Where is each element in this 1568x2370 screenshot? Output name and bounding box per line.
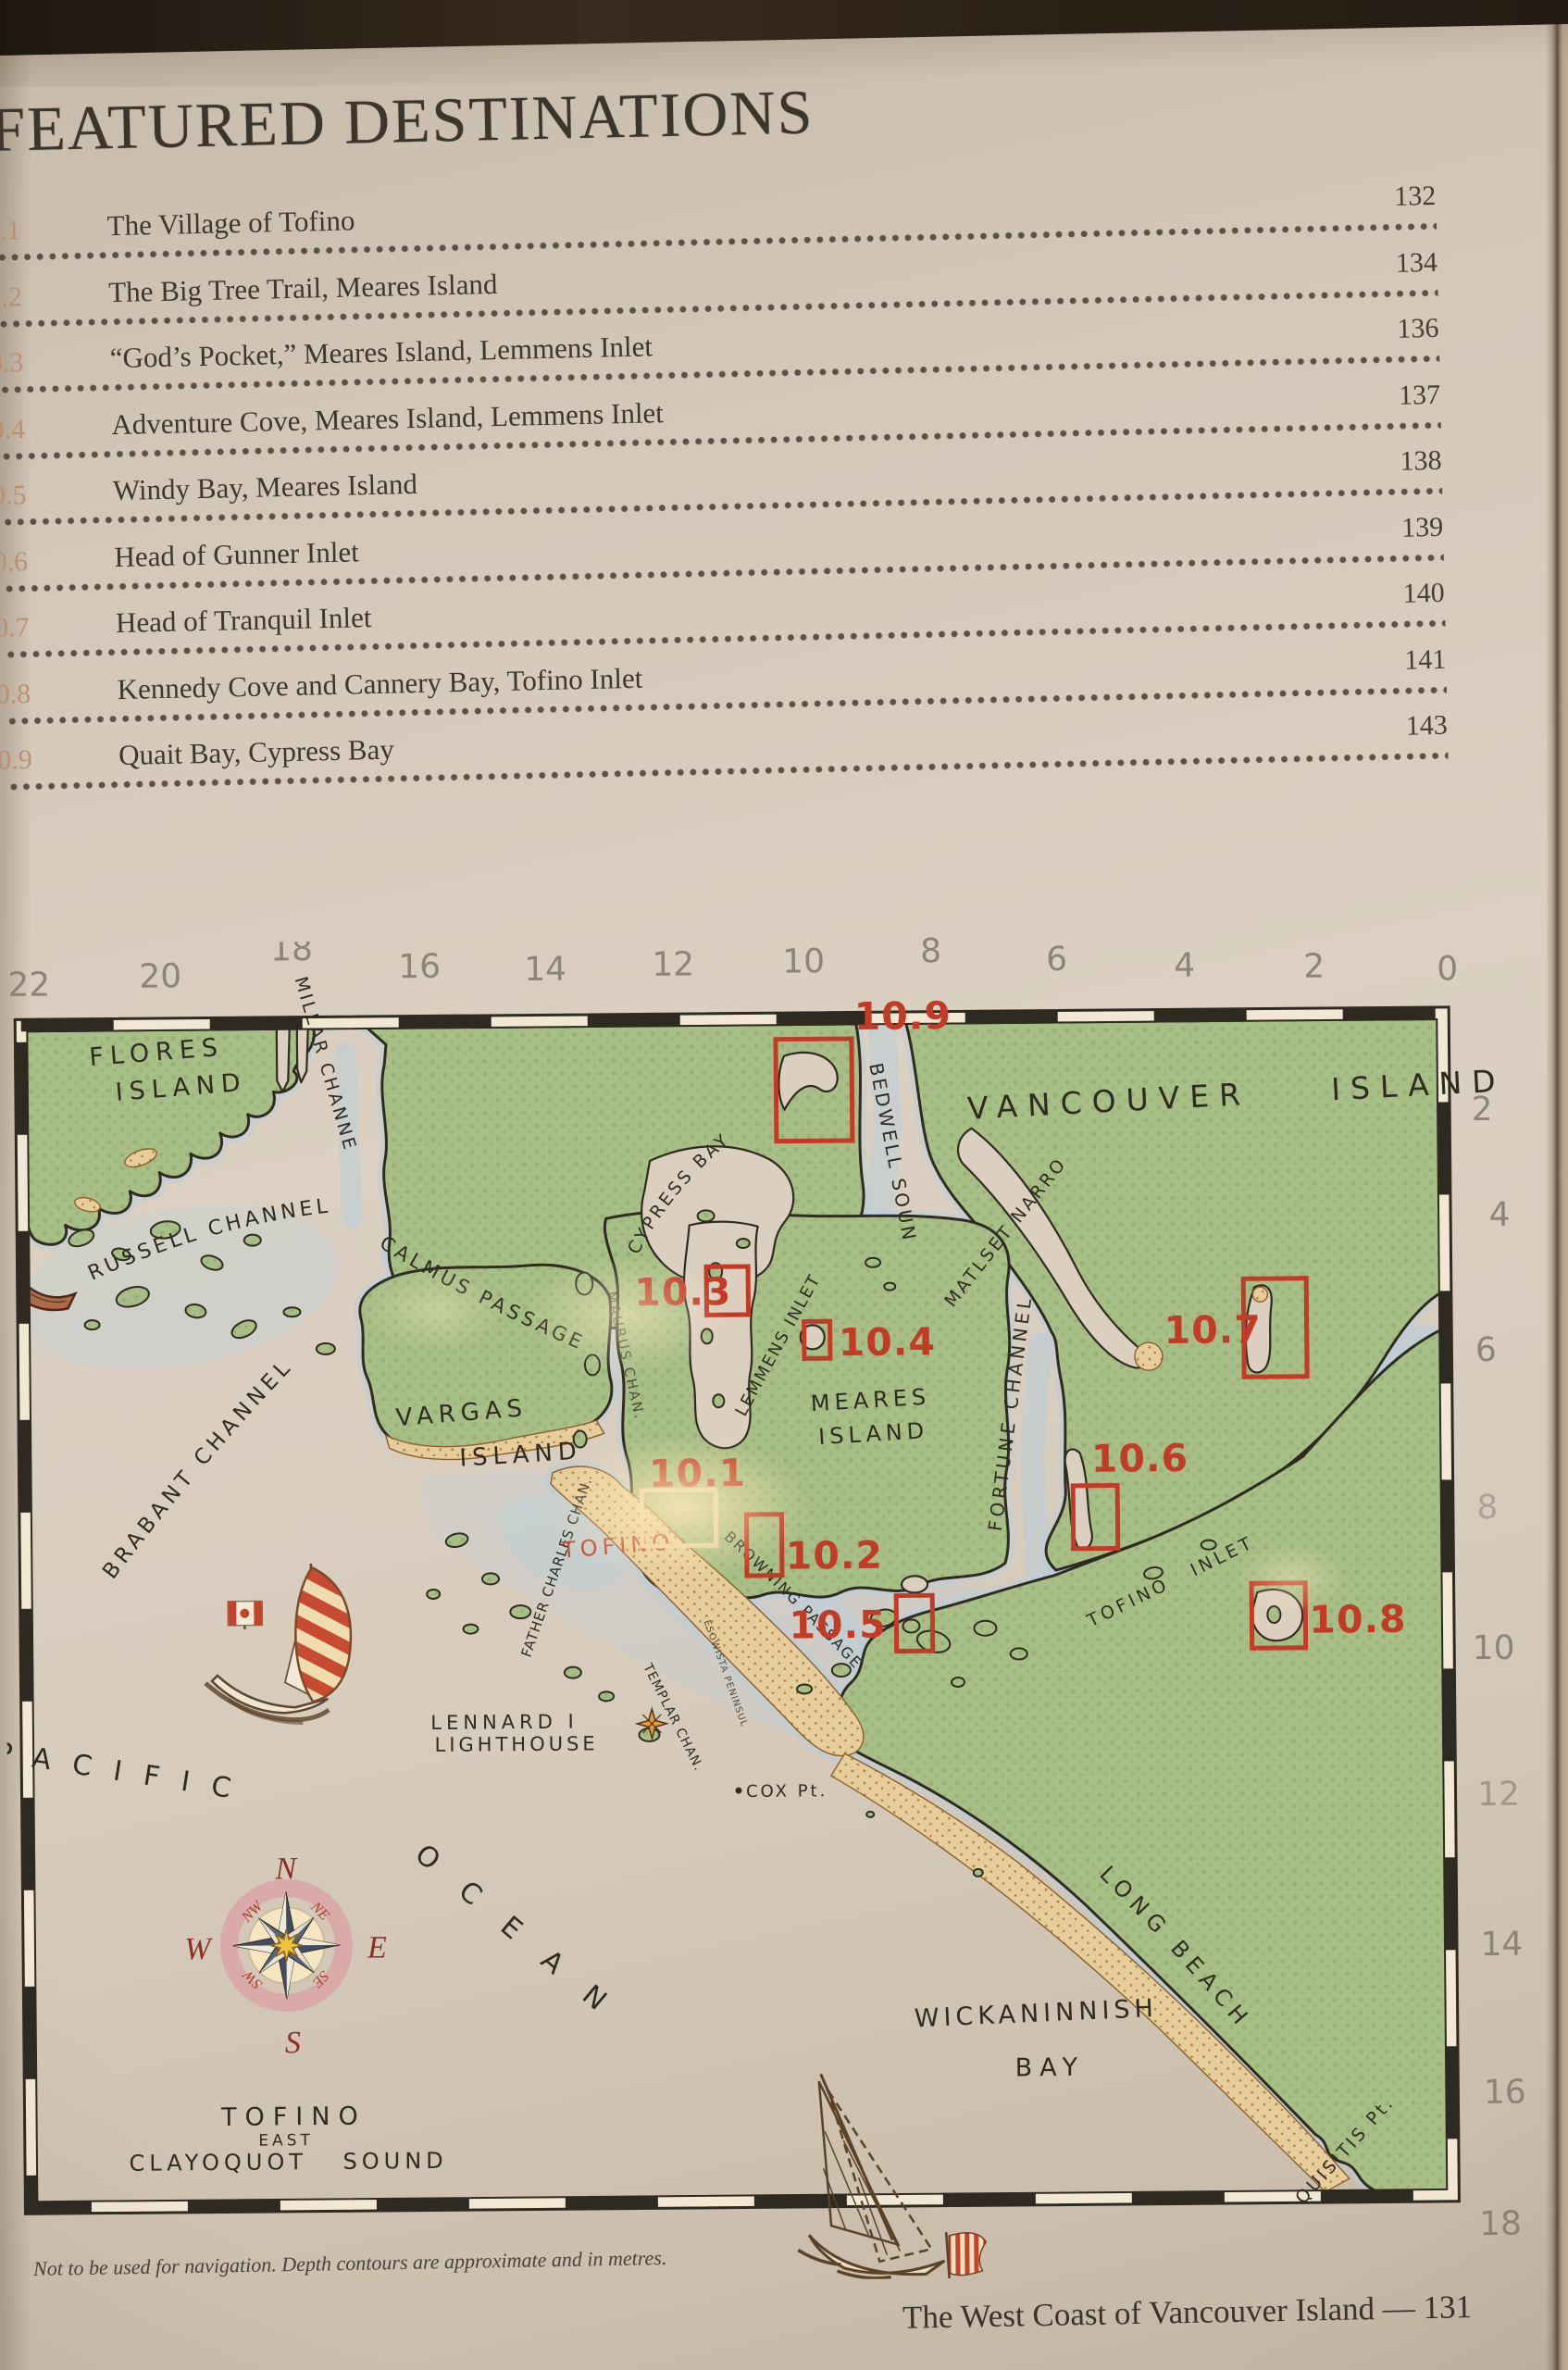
svg-text:OCEAN: OCEAN <box>408 1837 640 2042</box>
marker-label: 10.4 <box>839 1319 937 1365</box>
scale-number: 14 <box>1480 1926 1523 1964</box>
toc-entry-page: 134 <box>1396 246 1438 279</box>
cox-point-dot <box>735 1788 741 1794</box>
scale-number: 8 <box>920 932 941 970</box>
label-brabant-channel: BRABANT CHANNEL <box>96 1353 300 1584</box>
toc-entry-page: 141 <box>1404 643 1447 676</box>
sailboat-sloop-illustration <box>797 2073 987 2280</box>
scale-number: 8 <box>1476 1489 1498 1527</box>
toc-entry-number: 10.9 <box>0 743 77 777</box>
toc-entry-number: 10.5 <box>0 479 70 512</box>
scale-number: 14 <box>524 951 566 989</box>
toc-entry-page: 138 <box>1400 445 1442 478</box>
sand-patch <box>1135 1342 1163 1370</box>
svg-text:PACIFIC: PACIFIC <box>0 1734 255 1811</box>
page-right-edge <box>1546 0 1568 2370</box>
toc-entry-label: The Village of Tofino <box>106 204 355 243</box>
marker-label: 10.2 <box>786 1533 884 1578</box>
scale-number: 20 <box>139 957 181 995</box>
sand-patch <box>1252 1287 1267 1302</box>
scale-number: 18 <box>270 930 313 968</box>
compass-east: E <box>367 1930 387 1965</box>
label-clayoquot-sound: TOFINO <box>220 2102 367 2132</box>
scale-number: 18 <box>1479 2205 1522 2243</box>
scale-number: 6 <box>1046 941 1067 979</box>
label-clayoquot-sound: EAST <box>258 2131 314 2151</box>
windy-bay-water <box>902 1576 927 1592</box>
toc-entry-number: 10.2 <box>0 281 67 314</box>
label-wickaninnish-bay: BAY <box>1015 2053 1086 2083</box>
marker-label: 10.3 <box>634 1269 732 1315</box>
toc-entry-page: 143 <box>1405 710 1448 742</box>
scale-number: 12 <box>652 945 694 983</box>
svg-text:BRABANT CHANNEL: BRABANT CHANNEL <box>96 1353 300 1584</box>
label-ocean: OCEAN <box>408 1837 640 2042</box>
scale-number: 4 <box>1174 947 1195 985</box>
scale-number: 2 <box>1303 948 1325 986</box>
scale-number: 12 <box>1477 1776 1520 1814</box>
scale-number: 16 <box>398 948 441 986</box>
toc-entry-label: Windy Bay, Meares Island <box>113 468 418 507</box>
right-scale: 2 4 6 8 10 12 14 16 18 <box>1467 1091 1527 2243</box>
toc-entry-label: Head of Gunner Inlet <box>114 535 359 574</box>
book-page-photo: FEATURED DESTINATIONS 10.1 The Village o… <box>0 0 1568 2370</box>
label-lennard-lighthouse: LENNARD I <box>430 1711 579 1734</box>
scale-number: 0 <box>1437 950 1458 988</box>
scale-number: 10 <box>1473 1629 1515 1667</box>
compass-north: N <box>274 1852 298 1886</box>
label-lennard-lighthouse: LIGHTHOUSE <box>434 1732 598 1756</box>
scale-number: 16 <box>1484 2074 1526 2112</box>
clayoquot-sound-chart: 22 20 18 16 14 12 10 8 6 4 2 0 2 4 6 8 1… <box>0 930 1568 2287</box>
toc-entry-number: 10.8 <box>0 678 75 711</box>
scale-number: 4 <box>1488 1196 1510 1234</box>
compass-rose: N E S W NW NE SE SW <box>183 1851 388 2061</box>
flores-inlet <box>277 1027 291 1091</box>
label-cox-point: COX Pt. <box>746 1781 828 1802</box>
marker-label: 10.7 <box>1164 1307 1262 1353</box>
top-scale: 22 20 18 16 14 12 10 8 6 4 2 0 <box>7 930 1459 1004</box>
toc-entry-number: 10.7 <box>0 611 74 644</box>
toc-entry-page: 140 <box>1402 578 1445 610</box>
toc-entry-page: 136 <box>1397 313 1439 345</box>
photo-background-top <box>0 0 1568 57</box>
toc-entry-page: 139 <box>1401 511 1444 543</box>
sailboat-spinnaker-illustration <box>205 1564 352 1724</box>
label-wickaninnish-bay: WICKANINNISH <box>914 1994 1158 2033</box>
marker-label: 10.5 <box>789 1603 887 1648</box>
toc-entry-label: The Big Tree Trail, Meares Island <box>108 268 498 309</box>
toc-entry-label: Head of Tranquil Inlet <box>116 601 372 640</box>
marker-label: 10.1 <box>649 1451 747 1496</box>
marker-label: 10.8 <box>1309 1597 1407 1642</box>
page-title: FEATURED DESTINATIONS <box>0 76 815 167</box>
scale-number: 6 <box>1475 1331 1497 1369</box>
marker-label: 10.9 <box>854 993 952 1039</box>
label-pacific: PACIFIC <box>0 1734 255 1811</box>
marker-label: 10.6 <box>1091 1436 1189 1481</box>
toc-entry-number: 10.4 <box>0 413 69 446</box>
compass-west: W <box>184 1932 213 1966</box>
toc-entry-page: 137 <box>1399 379 1441 411</box>
toc-entry-number: 10.6 <box>0 545 72 579</box>
toc-entry-number: 10.1 <box>0 214 65 247</box>
toc-entry-label: Quait Bay, Cypress Bay <box>118 733 394 772</box>
toc-rows: 10.1 The Village of Tofino 132 10.2 The … <box>0 176 1567 805</box>
compass-south: S <box>285 2026 301 2060</box>
scale-number: 22 <box>7 967 50 1004</box>
running-footer-page-number: The West Coast of Vancouver Island — 131 <box>902 2289 1473 2337</box>
compass-center-star <box>270 1929 302 1961</box>
stern-flag <box>949 2233 986 2276</box>
scale-number: 10 <box>782 942 825 980</box>
toc-entry-page: 132 <box>1394 181 1437 213</box>
label-clayoquot-sound: CLAYOQUOT SOUND <box>129 2148 447 2177</box>
toc-entry-number: 10.3 <box>0 346 68 380</box>
